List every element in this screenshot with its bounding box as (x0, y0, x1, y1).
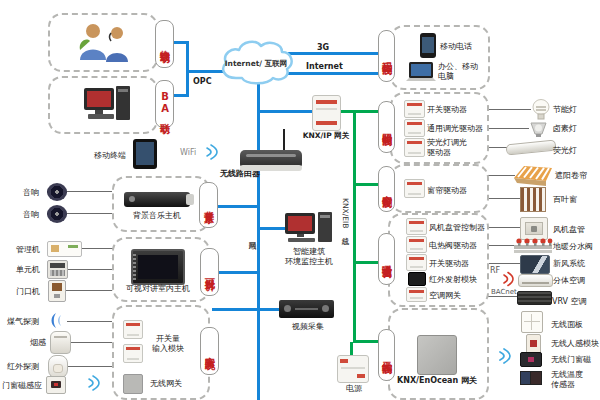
device-wire (488, 198, 521, 199)
knx-bus-line (353, 110, 356, 343)
connector-line (257, 110, 312, 113)
wireless-signal-icon (84, 373, 102, 393)
music-host-icon (124, 192, 190, 207)
cfl-lamp-icon (531, 99, 551, 120)
device-wire (70, 342, 113, 343)
connector-line-internet (288, 72, 381, 75)
wireless-panel-icon (521, 311, 543, 333)
device-wire (67, 321, 113, 322)
right-device-label: 无线温度 传感器 (551, 370, 587, 389)
din-module-icon (123, 320, 143, 339)
remote-device-label: 办公、移动 电脑 (438, 62, 486, 81)
fluorescent-tube-icon (506, 139, 557, 155)
door-magnet-icon (46, 376, 66, 394)
din-module-icon (406, 254, 427, 271)
right-device-label: 遮阳卷帘 (555, 171, 591, 181)
intercom-host-icon (131, 249, 185, 285)
left-device-label: 红外探测 (7, 362, 45, 372)
tab-lighting: 照明控制 (378, 101, 395, 153)
tab-property: 物业联动 (155, 20, 174, 68)
din-module-icon (123, 344, 143, 363)
connector-line (214, 271, 260, 274)
wireless-pir-icon (526, 334, 541, 354)
people-icon (76, 20, 132, 65)
fresh-air-icon (520, 255, 550, 274)
din-module-icon (406, 287, 427, 302)
device-wire (67, 213, 113, 214)
knx-ip-gateway-label: KNX/IP 网关 (298, 131, 354, 140)
tab-intercom: 可视对讲 (200, 248, 219, 296)
label-internet: Internet (306, 62, 346, 72)
mobile-phone-icon (420, 33, 436, 58)
right-device-label: 新风系统 (553, 259, 589, 269)
din-module-icon (406, 236, 427, 253)
knx-ip-gateway-icon (312, 95, 341, 131)
tab-wireless: 无线控制 (378, 329, 395, 381)
hvac-device-label: 红外发射模块 (429, 275, 481, 285)
mobile-terminal-label: 移动终端 (94, 151, 130, 161)
hvac-device-label: 开关驱动器 (429, 259, 477, 269)
right-device-label: 地暖分水阀 (553, 242, 597, 252)
lan-trunk-line (257, 84, 260, 400)
label-3g: 3G (317, 43, 335, 53)
internet-cloud: Internet/ 互联网 (216, 36, 296, 90)
knx-system-diagram: 物业联动 BA联动 远程控制 照明控制 窗帘控制 暖通空调 无线控制 背景音乐 … (0, 0, 600, 400)
din-module-icon (406, 218, 427, 235)
knx-bus-branch (350, 342, 353, 355)
gas-detector-icon (46, 311, 68, 330)
left-device-label: 门窗磁感应 (2, 381, 46, 391)
device-wire (67, 269, 113, 270)
door-station-icon (48, 280, 66, 302)
right-device-label: 无线人感模块 (551, 339, 600, 349)
tab-remote: 远程控制 (378, 30, 395, 82)
label-wifi: WiFi (180, 148, 202, 158)
device-wire (80, 248, 113, 249)
monitor-host-icon (285, 212, 335, 246)
unit-station-icon (47, 260, 68, 279)
power-label: 电源 (346, 384, 366, 394)
din-module-icon (404, 100, 425, 118)
connector-line (186, 41, 189, 97)
tab-ba: BA联动 (155, 80, 174, 128)
device-wire (67, 366, 113, 367)
video-capture-label: 视频采集 (292, 322, 328, 332)
wireless-signal-icon (495, 345, 513, 367)
manager-station-icon (47, 241, 82, 257)
halogen-lamp-icon (528, 120, 549, 138)
left-device-label: 管理机 (16, 245, 44, 255)
right-device-label: 卤素灯 (553, 124, 581, 134)
right-device-label: 百叶窗 (553, 195, 581, 205)
device-wire (488, 263, 521, 264)
right-device-label: 分体空调 (553, 276, 589, 286)
device-wire (488, 128, 529, 129)
device-wire (488, 175, 515, 176)
din-module-icon (404, 179, 425, 198)
music-host-label: 背景音乐主机 (126, 211, 188, 221)
device-wire (488, 245, 515, 246)
intercom-host-label: 可视对讲室内主机 (126, 284, 190, 294)
left-device-label: 音响 (23, 210, 41, 220)
tab-security: 安防系统 (200, 327, 219, 375)
connector-line (172, 94, 189, 97)
speaker-icon (47, 183, 67, 201)
laptop-icon (404, 61, 438, 84)
smoke-detector-icon (50, 331, 71, 354)
enocean-gateway-label: KNX/EnOcean 网关 (397, 376, 477, 386)
right-device-label: VRV 空调 (552, 297, 592, 307)
remote-device-label: 移动电话 (440, 42, 480, 52)
power-supply-icon (337, 355, 369, 383)
right-device-label: 荧光灯 (553, 146, 581, 156)
left-device-label: 烟感 (30, 338, 48, 348)
split-ac-icon (518, 274, 553, 287)
speaker-icon (47, 205, 67, 223)
din-module-icon (404, 138, 425, 157)
tab-music: 背景音乐 (199, 182, 218, 228)
tab-hvac: 暖通空调 (378, 233, 395, 285)
device-wire (65, 290, 113, 291)
hvac-device-label: 电热阀驱动器 (429, 241, 483, 251)
blinds-icon (520, 187, 546, 212)
tablet-icon (133, 139, 157, 169)
manifold-icon (513, 237, 553, 255)
left-device-label: 门口机 (16, 287, 44, 297)
connector-line (212, 308, 283, 311)
hvac-device-label: 空调网关 (429, 291, 469, 301)
knx-bus-branch (340, 110, 383, 113)
wireless-router-icon (240, 150, 302, 167)
lighting-device-label: 开关驱动器 (427, 105, 483, 115)
curtain-device-label: 窗帘驱动器 (427, 186, 479, 196)
left-device-label: 煤气探测 (7, 317, 45, 327)
device-wire (488, 109, 531, 110)
knx-bus-branch (353, 261, 380, 264)
connector-line (214, 205, 260, 208)
left-device-label: 单元机 (16, 265, 44, 275)
lighting-device-label: 通用调光驱动器 (427, 124, 487, 134)
device-wire (67, 191, 113, 192)
wireless-temp-sensor-icon (520, 369, 542, 385)
right-device-label: 风机盘管 (553, 225, 589, 235)
right-device-label: 节能灯 (553, 105, 581, 115)
cloud-label: Internet/ 互联网 (222, 59, 290, 68)
ba-computer-icon (82, 84, 134, 126)
right-device-label: 无线门窗磁 (551, 355, 597, 365)
rf-signal-icon (500, 270, 515, 288)
tab-curtain: 窗帘控制 (378, 166, 395, 212)
wireless-gateway-icon (123, 374, 143, 394)
wireless-door-magnet-icon (520, 352, 542, 367)
label-knx-bus: KNX/EIB 总线 (341, 198, 350, 258)
security-device-label: 无线网关 (150, 379, 186, 389)
right-device-label: 无线面板 (551, 320, 587, 330)
left-device-label: 音响 (23, 188, 41, 198)
ir-transmitter-icon (408, 272, 426, 286)
din-module-icon (404, 119, 425, 137)
monitor-host-label: 智能建筑 环境监控主机 (280, 247, 338, 266)
wifi-signal-icon (203, 143, 219, 161)
security-device-label: 开关量 输入模块 (148, 334, 188, 353)
enocean-gateway-icon (417, 335, 457, 375)
device-wire (488, 227, 521, 228)
hvac-device-label: 风机盘管控制器 (429, 223, 487, 233)
video-capture-icon (279, 300, 334, 318)
awning-icon (512, 164, 554, 188)
lighting-device-label: 荧光灯调光 驱动器 (427, 138, 475, 157)
vrv-ac-icon (517, 291, 552, 305)
